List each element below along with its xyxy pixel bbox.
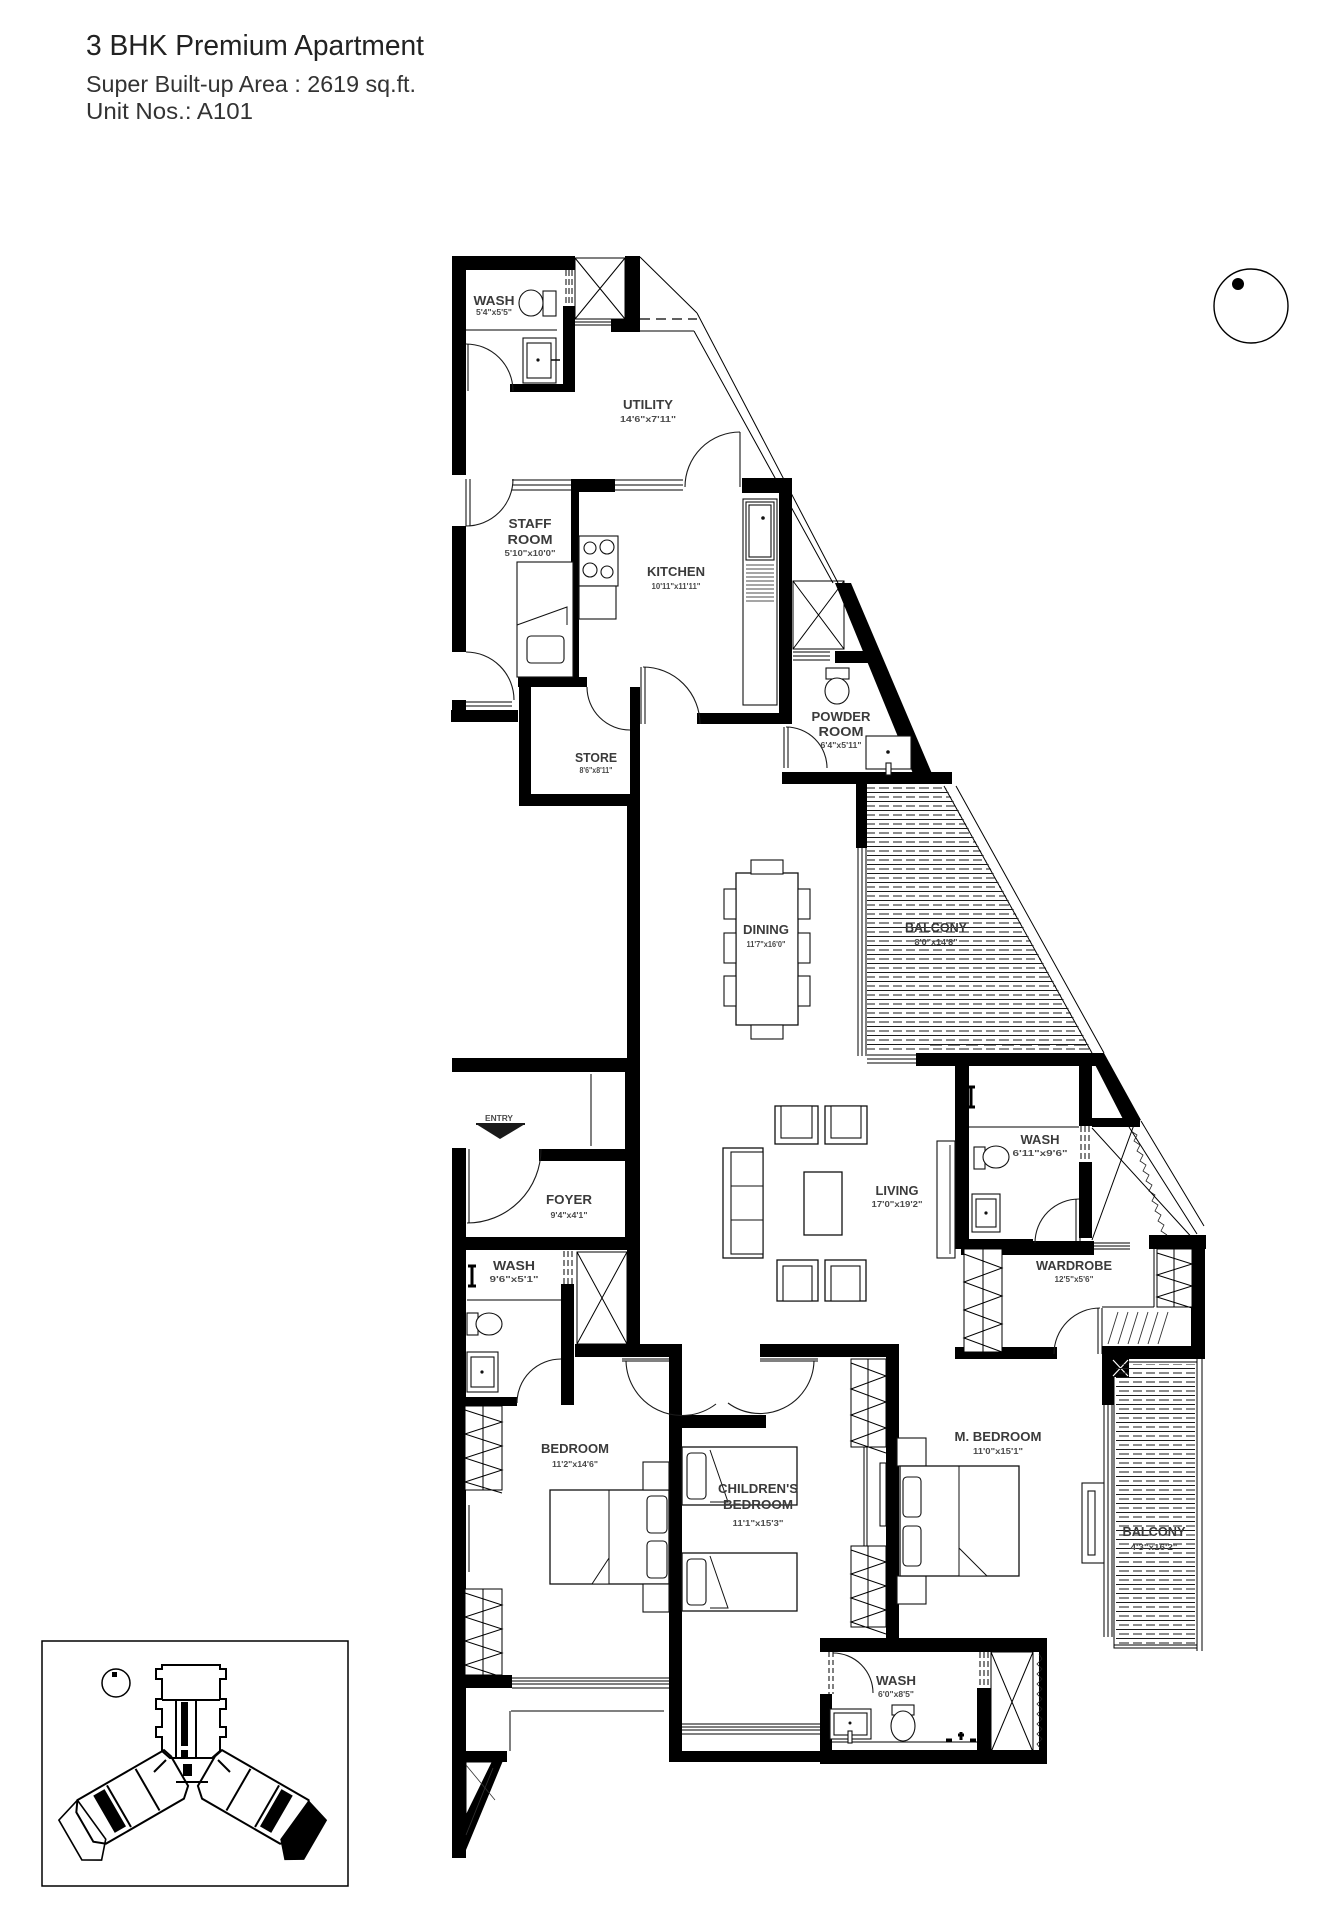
svg-text:ROOM: ROOM bbox=[508, 533, 553, 547]
svg-text:11'7"x16'0": 11'7"x16'0" bbox=[747, 940, 786, 949]
svg-text:BEDROOM: BEDROOM bbox=[541, 1442, 609, 1456]
svg-text:11'1"x15'3": 11'1"x15'3" bbox=[733, 1519, 784, 1528]
svg-text:14'6"x7'11": 14'6"x7'11" bbox=[620, 415, 676, 424]
svg-text:8'6"x8'11": 8'6"x8'11" bbox=[580, 766, 613, 775]
svg-text:WASH: WASH bbox=[876, 1674, 916, 1688]
svg-text:UTILITY: UTILITY bbox=[623, 398, 674, 412]
svg-text:WASH: WASH bbox=[474, 294, 515, 308]
svg-text:ROOM: ROOM bbox=[819, 725, 864, 739]
svg-text:5'10"x10'0": 5'10"x10'0" bbox=[505, 549, 556, 558]
svg-text:11'0"x15'1": 11'0"x15'1" bbox=[973, 1447, 1023, 1456]
svg-text:Super Built-up Area : 2619 sq.: Super Built-up Area : 2619 sq.ft. bbox=[86, 71, 416, 97]
svg-text:CHILDREN'S: CHILDREN'S bbox=[718, 1482, 798, 1496]
svg-text:12'5"x5'6": 12'5"x5'6" bbox=[1055, 1275, 1094, 1284]
svg-text:BALCONY: BALCONY bbox=[905, 921, 968, 935]
svg-text:WASH: WASH bbox=[1021, 1133, 1060, 1147]
svg-text:STORE: STORE bbox=[575, 751, 617, 765]
svg-text:WASH: WASH bbox=[493, 1259, 535, 1273]
svg-text:8'0"x14'8": 8'0"x14'8" bbox=[915, 938, 958, 947]
svg-text:DINING: DINING bbox=[743, 923, 789, 937]
svg-text:Unit Nos.: A101: Unit Nos.: A101 bbox=[86, 98, 253, 124]
svg-text:6'11"x9'6": 6'11"x9'6" bbox=[1013, 1149, 1068, 1158]
svg-text:17'0"x19'2": 17'0"x19'2" bbox=[872, 1200, 923, 1209]
svg-text:BEDROOM: BEDROOM bbox=[723, 1498, 793, 1512]
svg-text:9'4"x4'1": 9'4"x4'1" bbox=[551, 1211, 588, 1220]
svg-text:10'11"x11'11": 10'11"x11'11" bbox=[652, 582, 701, 591]
svg-text:3 BHK Premium Apartment: 3 BHK Premium Apartment bbox=[86, 30, 424, 62]
svg-text:9'6"x5'1": 9'6"x5'1" bbox=[490, 1275, 539, 1284]
svg-text:WARDROBE: WARDROBE bbox=[1036, 1259, 1112, 1273]
svg-text:4'3"x16'2": 4'3"x16'2" bbox=[1131, 1543, 1178, 1552]
svg-text:5'4"x5'5": 5'4"x5'5" bbox=[476, 308, 512, 317]
svg-text:KITCHEN: KITCHEN bbox=[647, 565, 705, 579]
svg-text:11'2"x14'6": 11'2"x14'6" bbox=[552, 1460, 598, 1469]
svg-text:M. BEDROOM: M. BEDROOM bbox=[955, 1430, 1042, 1444]
svg-text:POWDER: POWDER bbox=[812, 710, 871, 724]
svg-text:FOYER: FOYER bbox=[546, 1193, 592, 1207]
svg-text:ENTRY: ENTRY bbox=[485, 1114, 514, 1123]
svg-text:6'4"x5'11": 6'4"x5'11" bbox=[821, 741, 862, 750]
svg-text:LIVING: LIVING bbox=[876, 1184, 919, 1198]
svg-text:BALCONY: BALCONY bbox=[1123, 1525, 1187, 1539]
svg-text:STAFF: STAFF bbox=[509, 517, 552, 531]
svg-text:6'0"x8'5": 6'0"x8'5" bbox=[878, 1690, 914, 1699]
